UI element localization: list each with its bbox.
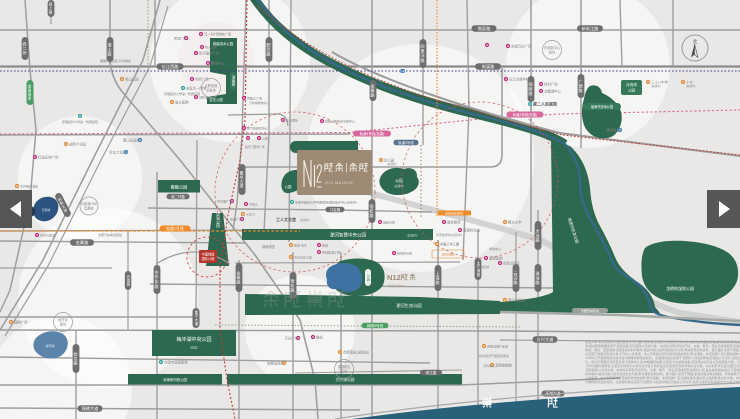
- svg-text:(在建中): (在建中): [407, 233, 418, 238]
- svg-text:滨湖世纪城: 滨湖世纪城: [474, 264, 489, 269]
- svg-text:淝河智慧中央公园: 淝河智慧中央公园: [330, 232, 366, 239]
- svg-text:金寨路: 金寨路: [76, 239, 89, 246]
- svg-text:(在建中): (在建中): [651, 84, 661, 88]
- svg-text:万象城购物中心: 万象城购物中心: [249, 101, 269, 105]
- svg-text:市府广场: 市府广场: [195, 76, 209, 81]
- svg-text:中国铁建: 中国铁建: [202, 252, 216, 257]
- svg-text:云谷路: 云谷路: [513, 271, 519, 286]
- svg-text:北雁湖中心: 北雁湖中心: [544, 88, 562, 93]
- svg-text:合肥南站(高铁站): 合肥南站(高铁站): [343, 349, 369, 354]
- svg-text:春融公园: 春融公园: [171, 184, 188, 191]
- svg-text:轨道1号线: 轨道1号线: [166, 226, 184, 231]
- svg-text:临泉路: 临泉路: [478, 25, 491, 32]
- svg-text:蜀麓科创园区·科创驿站: 蜀麓科创园区·科创驿站: [100, 58, 131, 63]
- svg-text:国际公馆: 国际公馆: [202, 256, 215, 261]
- svg-text:市气象研究中心: 市气象研究中心: [247, 125, 268, 130]
- svg-text:区板块: 区板块: [206, 88, 216, 93]
- svg-text:公园: 公园: [628, 88, 636, 93]
- svg-text:置地·天玺: 置地·天玺: [294, 242, 307, 247]
- svg-text:大东门: 大东门: [246, 211, 255, 216]
- svg-text:曙光小学: 曙光小学: [508, 219, 522, 224]
- svg-text:珠江路: 珠江路: [426, 370, 437, 375]
- svg-text:滨湖时光城: 滨湖时光城: [463, 227, 481, 232]
- svg-text:滨湖品阁: 滨湖品阁: [489, 255, 503, 260]
- svg-text:中隐于市三期: 中隐于市三期: [440, 241, 459, 246]
- svg-text:轨道4号线(在建): 轨道4号线(在建): [513, 112, 538, 117]
- svg-text:杭州经济开发区管委会: 杭州经济开发区管委会: [479, 353, 509, 358]
- svg-text:安徽医科大学第一附属医院: 安徽医科大学第一附属医院: [164, 91, 200, 96]
- svg-text:长江东路学校: 长江东路学校: [509, 76, 530, 81]
- svg-text:M: M: [401, 69, 404, 73]
- svg-text:(在建中): (在建中): [300, 218, 310, 222]
- svg-text:公园: 公园: [285, 184, 292, 189]
- svg-text:荣城广场: 荣城广场: [174, 35, 186, 40]
- svg-text:樱花中心: 樱花中心: [211, 60, 225, 65]
- svg-text:第二人民医院: 第二人民医院: [533, 100, 557, 106]
- svg-text:龙栖地湿地公园: 龙栖地湿地公园: [666, 285, 694, 291]
- svg-text:家乐福广场: 家乐福广场: [217, 198, 232, 203]
- svg-text:N12 MAISON: N12 MAISON: [325, 181, 353, 185]
- svg-text:省立医院: 省立医院: [175, 99, 189, 104]
- svg-text:方兴大道: 方兴大道: [537, 336, 555, 343]
- svg-text:(在建中): (在建中): [387, 162, 397, 166]
- svg-text:(在建中): (在建中): [686, 84, 696, 88]
- svg-text:万达广场: 万达广场: [284, 335, 298, 340]
- svg-text:天鹅湖: 天鹅湖: [42, 208, 51, 212]
- svg-text:东部新中心: 东部新中心: [544, 45, 561, 50]
- svg-text:和平盛世广场: 和平盛世广场: [199, 50, 220, 55]
- svg-text:十中: 十中: [686, 79, 693, 84]
- svg-text:公寓: 公寓: [262, 135, 268, 140]
- svg-text:经开区: 经开区: [58, 317, 68, 322]
- svg-text:板块: 板块: [341, 369, 348, 374]
- svg-text:合肥市滨湖医院: 合肥市滨湖医院: [164, 359, 188, 364]
- svg-text:始信路: 始信路: [73, 350, 79, 366]
- svg-text:自贸试验区: 自贸试验区: [503, 260, 521, 265]
- svg-text:轨道4号线(在建): 轨道4号线(在建): [360, 131, 385, 136]
- svg-text:滨湖新区: 滨湖新区: [338, 364, 352, 369]
- svg-text:板块: 板块: [549, 50, 556, 55]
- svg-text:金寨路: 金寨路: [370, 82, 376, 98]
- svg-text:香樟雅苑: 香樟雅苑: [447, 219, 461, 224]
- svg-text:售楼处: 售楼处: [84, 206, 94, 211]
- svg-text:鸡山公园: 鸡山公园: [125, 76, 139, 81]
- svg-text:宋庆龄学校(在建中): 宋庆龄学校(在建中): [436, 232, 462, 237]
- svg-text:水墨国际: 水墨国际: [286, 117, 298, 122]
- svg-text:东城万达广场: 东城万达广场: [511, 43, 532, 48]
- svg-text:万科中心: 万科中心: [483, 363, 495, 368]
- svg-text:古井假日酒店: 古井假日酒店: [20, 183, 38, 188]
- svg-text:金寨高架: 金寨高架: [27, 84, 32, 101]
- svg-text:泥埠桥河西公园: 泥埠桥河西公园: [163, 377, 187, 382]
- svg-text:国购广场: 国购广场: [14, 319, 28, 324]
- svg-text:百大CBD: 百大CBD: [205, 44, 218, 49]
- svg-text:(在建): (在建): [190, 345, 198, 350]
- svg-text:西二环: 西二环: [23, 41, 28, 56]
- svg-text:锦绣大道: 锦绣大道: [82, 405, 100, 412]
- svg-text:渡江纪念馆: 渡江纪念馆: [508, 297, 526, 302]
- svg-text:丹霞路: 丹霞路: [126, 275, 130, 287]
- svg-text:方兴光达小区: 方兴光达小区: [294, 254, 312, 259]
- svg-text:N12: N12: [387, 273, 401, 282]
- svg-text:售楼处开放中: 售楼处开放中: [388, 284, 404, 288]
- svg-text:繁华大道: 繁华大道: [194, 309, 198, 325]
- svg-text:安徽中医药大学附属医院(国际医疗中心在建中): 安徽中医药大学附属医院(国际医疗中心在建中): [295, 199, 357, 204]
- svg-text:时代领域: 时代领域: [442, 252, 454, 257]
- svg-text:习友路: 习友路: [330, 207, 341, 212]
- svg-text:福乐门国际广场: 福乐门国际广场: [245, 145, 265, 149]
- svg-text:珠海路: 珠海路: [535, 270, 541, 286]
- svg-text:广德路: 广德路: [578, 78, 584, 94]
- svg-text:万象汇: 万象汇: [249, 201, 258, 206]
- svg-text:金寨路: 金寨路: [236, 269, 242, 285]
- svg-text:南二环路: 南二环路: [171, 194, 185, 199]
- svg-text:天鹅湖ONE: 天鹅湖ONE: [81, 201, 97, 206]
- svg-text:三十八中学: 三十八中学: [651, 79, 669, 84]
- svg-text:安徽医科大学第一附属医院: 安徽医科大学第一附属医院: [62, 119, 98, 124]
- svg-text:翡翠湖: 翡翠湖: [45, 343, 54, 348]
- svg-text:磨店家园: 磨店家园: [606, 127, 620, 132]
- svg-text:万一时代购物广场: 万一时代购物广场: [204, 31, 232, 36]
- svg-text:梅冲湖中央公园: 梅冲湖中央公园: [176, 336, 211, 343]
- svg-text:巍郎天阳: 巍郎天阳: [383, 219, 395, 224]
- svg-text:颍上路: 颍上路: [48, 2, 53, 15]
- svg-text:融创: 融创: [316, 334, 323, 339]
- svg-text:安徽公路物资交易中心: 安徽公路物资交易中心: [325, 118, 355, 123]
- svg-text:月亮湾: 月亮湾: [626, 82, 637, 87]
- svg-text:中环万象城: 中环万象城: [40, 232, 55, 237]
- svg-text:铂悦庐州府: 铂悦庐州府: [397, 250, 412, 255]
- svg-text:合作化路: 合作化路: [154, 269, 160, 290]
- svg-text:淮南路: 淮南路: [231, 74, 235, 86]
- svg-text:轨道2号线: 轨道2号线: [398, 140, 414, 145]
- svg-text:绿地中心: 绿地中心: [489, 246, 501, 251]
- svg-text:新安江路: 新安江路: [582, 25, 600, 32]
- svg-text:滨湖金融城: 滨湖金融城: [495, 362, 513, 367]
- svg-text:公园: 公园: [366, 274, 370, 282]
- svg-text:宿松路: 宿松路: [369, 203, 375, 219]
- svg-text:绿城桂语江南: 绿城桂语江南: [322, 249, 340, 254]
- svg-text:北: 北: [693, 38, 698, 45]
- svg-text:方兴湖公园: 方兴湖公园: [336, 377, 355, 382]
- svg-text:幼儿园: 幼儿园: [384, 157, 395, 162]
- svg-text:四里河路: 四里河路: [420, 44, 426, 64]
- svg-text:行解释和修改的权利。交通规划信息来源于合肥市人民政府网站及相: 行解释和修改的权利。交通规划信息来源于合肥市人民政府网站及相关公示文件,最终以政…: [585, 379, 740, 384]
- svg-text:创新产业园: 创新产业园: [69, 141, 87, 146]
- svg-text:锦绣家园: 锦绣家园: [262, 244, 275, 249]
- svg-text:徽州大道: 徽州大道: [239, 170, 244, 188]
- svg-text:工人文化宫: 工人文化宫: [276, 216, 296, 222]
- svg-text:合肥老城: 合肥老城: [205, 83, 219, 88]
- svg-text:合肥滨湖产业园: 合肥滨湖产业园: [487, 343, 508, 348]
- svg-text:郎园: 郎园: [322, 242, 328, 247]
- svg-text:锦绣5号线: 锦绣5号线: [367, 323, 384, 328]
- svg-text:合肥绕城高速: 合肥绕城高速: [581, 308, 599, 313]
- svg-text:安徽省政府: 安徽省政府: [267, 360, 285, 365]
- svg-text:蜀山区政府: 蜀山区政府: [123, 137, 141, 142]
- svg-text:潜山路: 潜山路: [107, 41, 113, 57]
- svg-text:百脑汇广场: 百脑汇广场: [247, 95, 262, 100]
- svg-text:板块: 板块: [60, 322, 67, 327]
- svg-text:名企工业园: 名企工业园: [109, 149, 127, 154]
- svg-text:福海湾湿地公园: 福海湾湿地公园: [591, 104, 613, 109]
- svg-text:上海路: 上海路: [435, 270, 441, 286]
- svg-text:置地广场: 置地广场: [230, 216, 242, 221]
- svg-text:安置房在建中: 安置房在建中: [445, 211, 463, 216]
- svg-text:裕溪路: 裕溪路: [482, 63, 495, 70]
- svg-text:保利广场: 保利广场: [544, 81, 558, 86]
- svg-text:肥西路: 肥西路: [266, 42, 272, 57]
- svg-text:长江西路: 长江西路: [162, 63, 180, 70]
- svg-text:淝河生态公园: 淝河生态公园: [396, 302, 421, 309]
- svg-text:合肥汽车客运西站: 合肥汽车客运西站: [98, 232, 122, 237]
- svg-text:大连路: 大连路: [535, 227, 541, 243]
- svg-text:红璟天地广场: 红璟天地广场: [38, 154, 59, 159]
- svg-text:铜陵路: 铜陵路: [528, 81, 534, 97]
